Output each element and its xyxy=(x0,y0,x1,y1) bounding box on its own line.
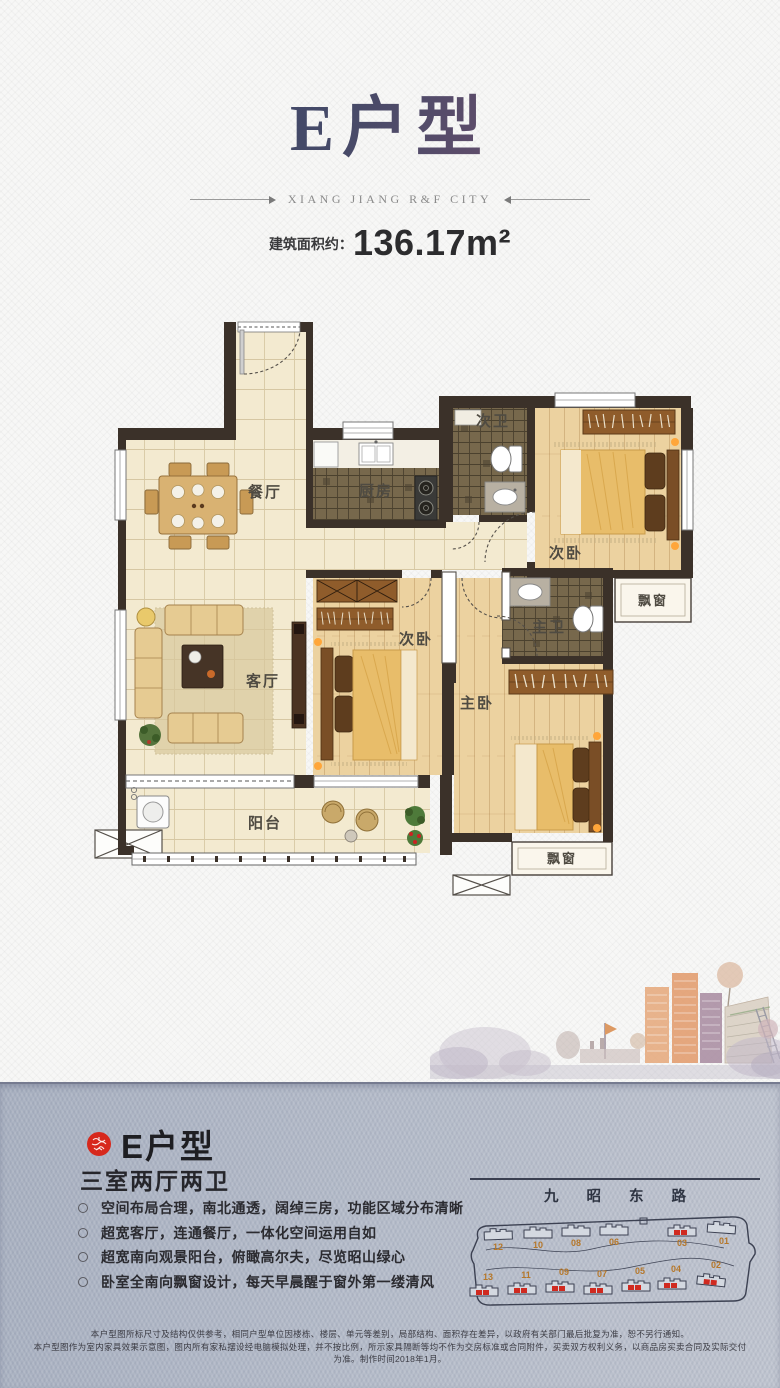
arrow-left-icon xyxy=(504,196,511,204)
disclaimer: 本户型图所标尺寸及结构仅供参考，相同户型单位因楼栋、楼层、单元等差别，局部结构、… xyxy=(30,1328,750,1366)
bullet-circle-icon xyxy=(78,1228,88,1238)
building-number: 02 xyxy=(711,1260,721,1270)
building-number: 04 xyxy=(671,1264,681,1274)
bullet-circle-icon xyxy=(78,1203,88,1213)
room-label-dining: 餐厅 xyxy=(248,483,282,501)
bay-window-east: 飘窗 xyxy=(615,578,691,622)
area-row: 建筑面积约：136.17m² xyxy=(0,222,780,264)
building-number: 10 xyxy=(533,1240,543,1250)
building-number: 06 xyxy=(609,1237,619,1247)
building-number: 07 xyxy=(597,1269,607,1279)
building-number: 01 xyxy=(719,1236,729,1246)
bay-window-south: 飘窗 xyxy=(512,842,612,875)
room-label-bedroom2-west: 次卧 xyxy=(399,630,433,648)
bullet-circle-icon xyxy=(78,1252,88,1262)
master-furniture xyxy=(509,670,613,832)
info-panel: E户型 三室两厅两卫 空间布局合理，南北通透，阔绰三房，功能区域分布清晰 超宽客… xyxy=(0,1082,780,1388)
divider-line-left xyxy=(190,199,269,200)
feature-item: 超宽客厅，连通餐厅，一体化空间运用自如 xyxy=(78,1221,464,1246)
tagline-text: XIANG JIANG R&F CITY xyxy=(288,192,492,207)
page-title: E户型 xyxy=(0,74,780,170)
room-label-balcony: 阳台 xyxy=(248,814,282,832)
site-plan: 12 10 08 06 03 01 13 11 09 07 05 04 02 xyxy=(462,1204,762,1316)
disclaimer-line1: 本户型图所标尺寸及结构仅供参考，相同户型单位因楼栋、楼层、单元等差别，局部结构、… xyxy=(30,1328,750,1341)
feature-list: 空间布局合理，南北通透，阔绰三房，功能区域分布清晰 超宽客厅，连通餐厅，一体化空… xyxy=(78,1196,464,1294)
room-label-bath-master: 主卫 xyxy=(532,618,566,636)
disclaimer-line2: 本户型图作为室内家具效果示意图，图内所有家私摆设经电脑模拟处理，并不按比例，所示… xyxy=(30,1341,750,1366)
road-name: 九昭东路 xyxy=(470,1185,760,1206)
floor-plan: 飘窗 飘窗 xyxy=(85,300,715,900)
city-illustration xyxy=(430,945,780,1082)
building-number: 12 xyxy=(493,1242,503,1252)
divider-line-right xyxy=(511,199,590,200)
area-value: 136.17m² xyxy=(353,222,511,263)
feature-item: 超宽南向观景阳台，俯瞰高尔夫，尽览昭山绿心 xyxy=(78,1245,464,1270)
svg-text:飘窗: 飘窗 xyxy=(638,593,668,608)
building-number: 13 xyxy=(483,1272,493,1282)
room-label-bedroom-master: 主卧 xyxy=(460,694,494,712)
unit-title: E户型 xyxy=(121,1120,215,1168)
room-label-bath2: 次卫 xyxy=(476,412,510,430)
building-number: 03 xyxy=(677,1238,687,1248)
road-line xyxy=(470,1178,760,1180)
tagline-divider: XIANG JIANG R&F CITY xyxy=(190,192,590,207)
room-label-kitchen: 厨房 xyxy=(359,482,393,500)
arrow-right-icon xyxy=(269,196,276,204)
svg-text:飘窗: 飘窗 xyxy=(547,851,577,866)
unit-heading: E户型 xyxy=(86,1120,215,1168)
room-label-bedroom2-north: 次卧 xyxy=(549,544,583,562)
unit-subtitle: 三室两厅两卫 xyxy=(80,1162,230,1196)
seal-icon xyxy=(86,1131,112,1157)
building-number: 08 xyxy=(571,1238,581,1248)
area-label: 建筑面积约： xyxy=(269,236,353,252)
bullet-circle-icon xyxy=(78,1277,88,1287)
feature-item: 卧室全南向飘窗设计，每天早晨醒于窗外第一缕清风 xyxy=(78,1270,464,1295)
building-number: 05 xyxy=(635,1266,645,1276)
ac-platform-right xyxy=(453,875,510,895)
building-number: 09 xyxy=(559,1267,569,1277)
building-number: 11 xyxy=(521,1270,531,1280)
room-label-living: 客厅 xyxy=(245,672,280,690)
feature-item: 空间布局合理，南北通透，阔绰三房，功能区域分布清晰 xyxy=(78,1196,464,1221)
